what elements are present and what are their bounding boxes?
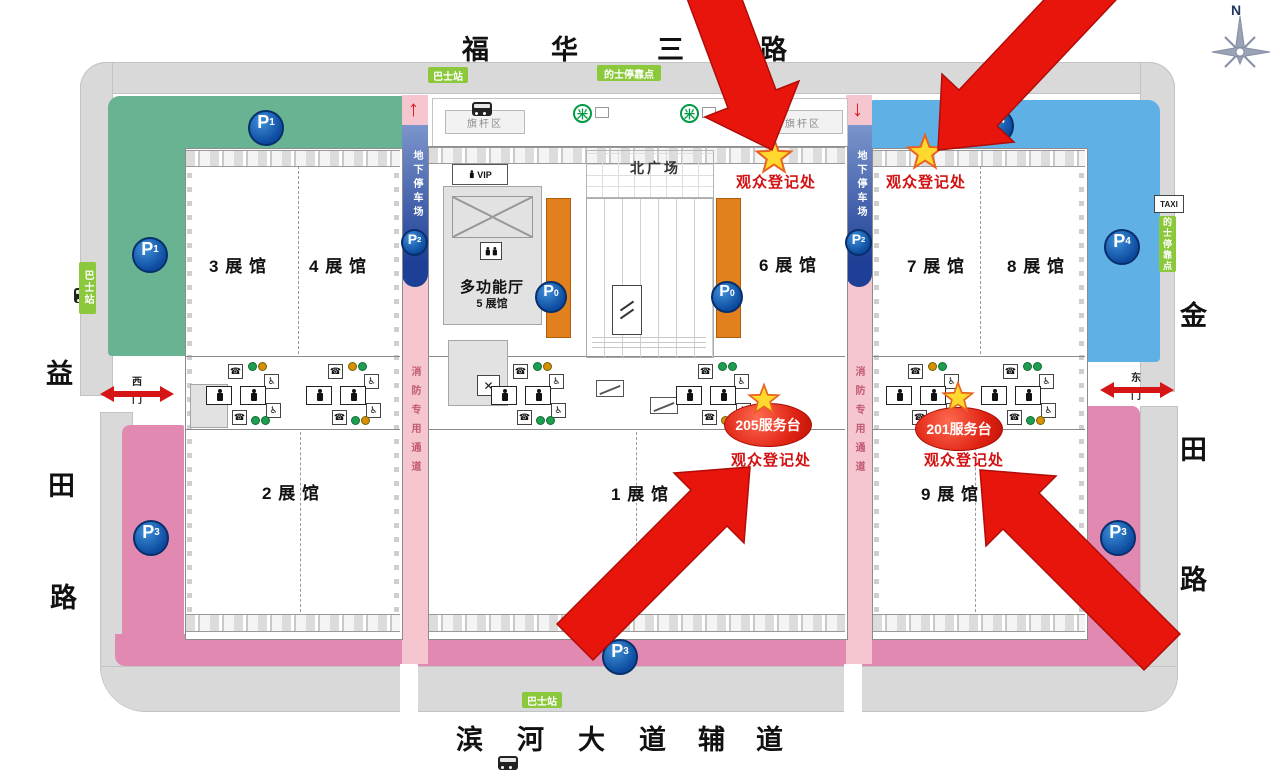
road-name-yitian: 路	[50, 576, 77, 615]
road-name-fuhua: 福	[462, 28, 489, 67]
hall-8-label: 8 展 馆	[981, 252, 1091, 277]
phone-icon: ☎	[908, 364, 923, 379]
multifunction-hall-label: 多功能厅	[438, 276, 546, 297]
vip-restroom: VIP	[452, 164, 508, 185]
meeting-room-icon	[480, 242, 502, 260]
stairs-icon	[612, 285, 642, 335]
wheelchair-icon: ♿	[944, 374, 959, 389]
road-gap	[844, 664, 862, 714]
door-modules	[429, 614, 845, 632]
road-name-binhe: 辅	[698, 718, 725, 757]
facility-cluster: ☎ ♿ ♿ ☎	[200, 356, 292, 428]
service-desk-205: 205服务台	[724, 403, 812, 447]
wheelchair-icon: ♿	[264, 374, 279, 389]
registration-label: 观众登记处	[709, 449, 833, 470]
road-name-fuhua: 华	[551, 28, 578, 67]
metro-entrance-box	[595, 107, 609, 118]
restroom-icon	[886, 386, 912, 405]
bus-icon	[498, 756, 518, 770]
phone-icon: ☎	[1003, 364, 1018, 379]
restroom-icon	[206, 386, 232, 405]
registration-label: 观众登记处	[864, 171, 988, 192]
compass-north-label: N	[1231, 2, 1241, 18]
ramp-up-arrow-icon: ↑	[408, 98, 419, 120]
wheelchair-icon: ♿	[364, 374, 379, 389]
flag-area-label: 旗杆区	[467, 115, 503, 130]
door-modules	[873, 150, 1085, 167]
gallery-west	[546, 198, 571, 338]
phone-icon: ☎	[232, 410, 247, 425]
east-gate-label: 东	[1128, 374, 1144, 384]
phone-icon: ☎	[513, 364, 528, 379]
parking-p2-badge: P2	[401, 229, 428, 256]
phone-icon: ☎	[1007, 410, 1022, 425]
road-right-lower	[1140, 406, 1178, 668]
bus-icon	[472, 102, 492, 116]
restroom-icon	[920, 386, 946, 405]
registration-label: 观众登记处	[902, 449, 1026, 470]
bus-station-label: 巴士站	[428, 67, 468, 83]
roof-brace	[452, 196, 533, 238]
vip-label: VIP	[477, 170, 492, 180]
wheelchair-icon: ♿	[1039, 374, 1054, 389]
metro-icon: 米	[680, 104, 699, 123]
road-name-binhe: 道	[639, 718, 666, 757]
signal-dots-icon	[1025, 416, 1045, 434]
phone-icon: ☎	[698, 364, 713, 379]
taxi-sign: TAXI	[1154, 195, 1184, 213]
road-name-binhe: 道	[756, 718, 783, 757]
phone-icon: ☎	[517, 410, 532, 425]
taxi-stop-label: 的士停靠点	[597, 65, 661, 81]
restroom-icon	[306, 386, 332, 405]
road-name-fuhua: 路	[760, 28, 787, 67]
west-gate-label: 西	[129, 378, 145, 388]
parking-p3-badge: P3	[1100, 520, 1136, 556]
metro-icon: 米	[573, 104, 592, 123]
restroom-icon	[981, 386, 1007, 405]
metro-entrance-box	[702, 107, 716, 118]
registration-label: 观众登记处	[714, 171, 838, 192]
flag-area-box: 旗杆区	[763, 110, 843, 134]
phone-icon: ☎	[328, 364, 343, 379]
parking-p3-badge: P3	[602, 639, 638, 675]
hall-4-label: 4 展 馆	[283, 252, 393, 277]
plaza-steps	[592, 336, 706, 352]
door-modules	[186, 150, 400, 167]
east-gate-label: 门	[1128, 392, 1144, 402]
signal-dots-icon	[535, 416, 555, 434]
atrium	[586, 198, 714, 358]
compass-rose-icon	[1212, 16, 1270, 67]
parking-area-p1-left	[108, 96, 185, 356]
restroom-icon	[1015, 386, 1041, 405]
service-desk-201: 201服务台	[915, 407, 1003, 451]
restroom-icon	[525, 386, 551, 405]
road-name-binhe: 滨	[456, 718, 483, 757]
fire-lane-label: 消防专用通道	[407, 366, 422, 480]
flag-area-label: 旗杆区	[785, 115, 821, 130]
hall-9-label: 9 展 馆	[895, 480, 1005, 505]
north-square-label: 北广场	[630, 158, 681, 178]
restroom-icon	[340, 386, 366, 405]
road-name-binhe: 河	[517, 718, 544, 757]
bus-station-label-vertical: 巴士站	[79, 262, 96, 314]
restroom-icon	[491, 386, 517, 405]
road-name-yitian: 益	[46, 352, 73, 391]
hall-divider	[300, 432, 301, 612]
wheelchair-icon: ♿	[549, 374, 564, 389]
wheelchair-icon: ♿	[734, 374, 749, 389]
underground-parking-label: 地下停车场	[409, 150, 424, 220]
door-modules	[186, 614, 400, 632]
road-name-fuhua: 三	[657, 28, 684, 67]
bus-station-label: 巴士站	[522, 692, 562, 708]
hall-1-label: 1 展 馆	[585, 480, 695, 505]
hall-7-label: 7 展 馆	[881, 252, 991, 277]
hall-2-label: 2 展 馆	[236, 479, 346, 504]
signal-dots-icon	[350, 416, 370, 434]
hall-5-label: 5 展馆	[438, 295, 546, 311]
west-gate-label: 门	[129, 396, 145, 406]
parking-p0-badge: P0	[711, 281, 743, 313]
road-gap	[400, 664, 418, 714]
restroom-icon	[676, 386, 702, 405]
parking-p1-badge: P1	[132, 237, 168, 273]
door-modules	[873, 614, 1085, 632]
exhibition-center-map: 地下停车场 地下停车场 消防专用通道 消防专用通道 ↑ ↓ ↓ 多功能厅 5 展…	[0, 0, 1280, 784]
fire-lane-label: 消防专用通道	[851, 366, 866, 480]
road-name-jintian: 金	[1180, 294, 1207, 333]
parking-p4-badge: P4	[1104, 229, 1140, 265]
road-bottom	[100, 666, 1178, 712]
hall-3-label: 3 展 馆	[183, 252, 293, 277]
restroom-icon	[710, 386, 736, 405]
hall-6-label: 6 展 馆	[733, 251, 843, 276]
ramp-down-arrow-icon: ↓	[852, 98, 863, 120]
parking-p4-badge: P4	[978, 108, 1014, 144]
phone-icon: ☎	[228, 364, 243, 379]
parking-p0-badge: P0	[535, 281, 567, 313]
restroom-icon	[240, 386, 266, 405]
signal-dots-icon	[250, 416, 270, 434]
parking-p1-badge: P1	[248, 110, 284, 146]
taxi-stop-label-vertical: 的士停靠点	[1159, 216, 1176, 272]
facility-cluster: ☎ ♿ ♿ ☎	[300, 356, 392, 428]
phone-icon: ☎	[702, 410, 717, 425]
parking-p3-badge: P3	[133, 520, 169, 556]
road-name-jintian: 田	[1180, 428, 1207, 467]
escalator-icon	[596, 380, 624, 397]
parking-p2-badge: P2	[845, 229, 872, 256]
road-name-jintian: 路	[1180, 558, 1207, 597]
road-name-binhe: 大	[578, 718, 605, 757]
hall-divider	[636, 432, 637, 612]
facility-cluster: ☎ ♿ ♿ ☎	[485, 356, 577, 428]
phone-icon: ☎	[332, 410, 347, 425]
road-name-yitian: 田	[48, 464, 75, 503]
